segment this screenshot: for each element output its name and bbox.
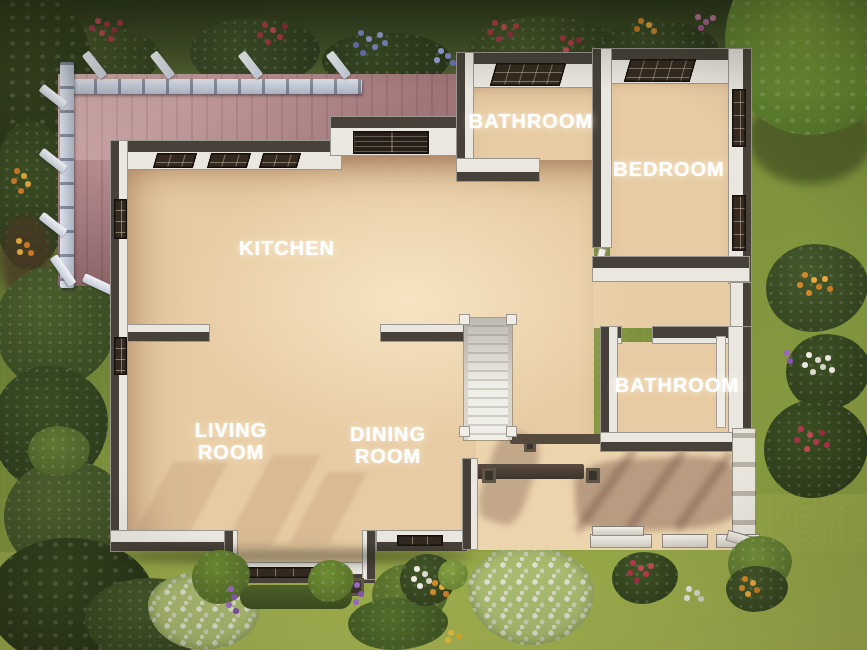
wall-bathroom-top-north [456,52,596,88]
flower-cluster-purple [784,350,790,356]
flower-cluster-red [262,22,268,28]
flower-cluster-orange [638,18,644,24]
vent-window [353,131,429,154]
label-bedroom: BEDROOM [613,158,724,180]
wall-bedroom-south [592,256,750,282]
flower-cluster-orange [432,580,438,586]
post-lantern [482,468,496,483]
window [490,63,567,86]
porch-railing-bottom [590,534,652,548]
stair-newel [459,314,470,325]
flower-cluster-pink [695,14,701,20]
wall-kitchen-north [112,140,342,170]
porch-step[interactable] [592,526,644,536]
bush [786,334,867,410]
wall-bedroom-west [592,48,612,248]
window [207,153,251,168]
flower-cluster-red [798,426,804,432]
flower-cluster-white [414,566,420,572]
flower-cluster-white [686,586,692,592]
flower-cluster-blue [438,48,444,54]
stair-newel [506,426,517,437]
wall-west [110,140,128,552]
label-bathroom-top: BATHROOM [469,110,593,132]
stair-newel [506,314,517,325]
flower-cluster-red [95,18,101,24]
flower-cluster-red [560,35,566,41]
window [732,89,746,147]
flower-cluster-yellow [448,630,454,636]
porch-railing-bottom [662,534,708,548]
window [732,195,746,251]
wall-bedroom-east [728,48,752,284]
label-kitchen: KITCHEN [239,237,335,259]
label-bathroom-right: BATHROOM [615,374,739,396]
wall-kitchen-dining [380,324,464,342]
label-dining-room: DINING ROOM [350,423,426,468]
flower-cluster-purple [354,582,360,588]
pergola-top-beam [70,79,362,94]
flower-cluster-orange [802,272,808,278]
flower-cluster-red [492,20,498,26]
stair-newel [459,426,470,437]
flower-cluster-white [806,352,812,358]
scene: BATHROOM BEDROOM KITCHEN BATHROOM LIVING… [0,0,867,650]
flower-cluster-red [630,560,636,566]
flower-cluster-orange [14,168,20,174]
label-living-room: LIVING ROOM [195,419,268,464]
window [397,535,443,546]
window [153,153,197,168]
wall-bathroom-right-south [600,432,752,452]
flower-cluster-orange [742,576,748,582]
flower-cluster-blue [358,30,364,36]
window [259,153,301,168]
wall-bathroom-top-west [456,52,474,162]
window [114,199,127,239]
wall-kitchen-north-jog [330,116,462,156]
wall-hall-east [730,282,752,328]
flower-cluster-purple [228,586,234,592]
window [114,337,127,375]
porch-step-edge [510,434,608,444]
wall-porch-divider [462,458,478,550]
window [624,59,697,82]
staircase-shading [464,318,512,440]
post-lantern [586,468,600,483]
wall-bathroom-top-south [456,158,540,182]
flower-cluster-orange [16,238,22,244]
pergola-left-beam [60,62,74,288]
